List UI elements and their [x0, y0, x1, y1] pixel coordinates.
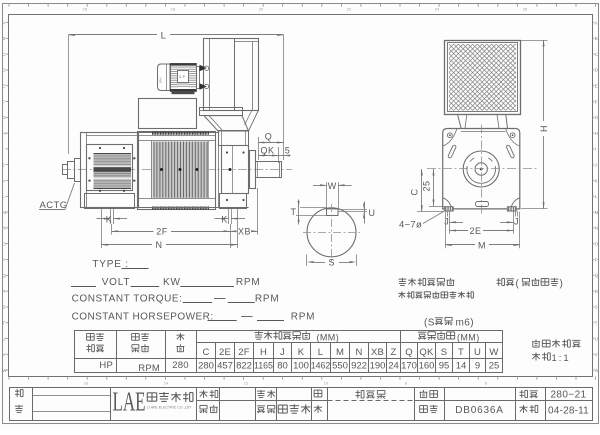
- svg-text:K: K: [298, 347, 305, 358]
- svg-text:18: 18: [171, 7, 176, 12]
- svg-text:2F: 2F: [156, 227, 168, 237]
- svg-text:190: 190: [370, 361, 386, 372]
- svg-text:N: N: [2, 226, 5, 231]
- svg-text:J: J: [280, 347, 285, 358]
- svg-text:J: J: [444, 217, 449, 227]
- svg-text:P: P: [2, 257, 5, 262]
- svg-text:G: G: [595, 115, 599, 120]
- svg-text:S: S: [595, 305, 598, 310]
- svg-text:T: T: [2, 321, 5, 326]
- svg-text:2E: 2E: [219, 347, 231, 358]
- svg-text:HP: HP: [99, 360, 113, 371]
- svg-text:2F: 2F: [238, 347, 250, 358]
- svg-text:(MM): (MM): [457, 332, 480, 342]
- svg-text:I: I: [595, 147, 596, 152]
- svg-text:160: 160: [419, 361, 435, 372]
- svg-text:280: 280: [198, 361, 214, 372]
- svg-text:95: 95: [439, 361, 450, 372]
- svg-text:280: 280: [172, 360, 188, 371]
- svg-text:DB0636A: DB0636A: [455, 405, 503, 416]
- svg-text:QK: QK: [419, 347, 434, 358]
- svg-text:T: T: [595, 321, 598, 326]
- svg-text:H: H: [539, 125, 549, 132]
- svg-text:N: N: [355, 347, 362, 358]
- svg-text:L: L: [2, 194, 5, 199]
- svg-text:26: 26: [523, 7, 528, 12]
- svg-text:LAE: LAE: [113, 387, 146, 417]
- svg-text:24: 24: [388, 361, 399, 372]
- svg-text:m6): m6): [456, 318, 474, 329]
- svg-text:4−7ø: 4−7ø: [399, 220, 422, 231]
- svg-text:LI AVE ELECTRIC CO.,LDT: LI AVE ELECTRIC CO.,LDT: [147, 406, 191, 410]
- svg-text:H: H: [595, 131, 598, 136]
- svg-text:5: 5: [285, 146, 291, 156]
- svg-text:F: F: [595, 99, 598, 104]
- svg-text:Q: Q: [265, 132, 273, 142]
- svg-text:14: 14: [456, 361, 467, 372]
- svg-text:E: E: [2, 84, 5, 89]
- svg-text:H: H: [260, 347, 267, 358]
- svg-text:(S: (S: [424, 318, 435, 329]
- svg-text:J: J: [2, 163, 4, 168]
- svg-text:25: 25: [421, 180, 431, 191]
- svg-text:F: F: [2, 99, 5, 104]
- svg-text:Z: Z: [390, 347, 396, 358]
- svg-text:): ): [560, 279, 564, 290]
- svg-text:S: S: [441, 347, 448, 358]
- svg-text:T: T: [291, 207, 297, 217]
- svg-text:U: U: [369, 208, 376, 218]
- svg-text:RPM: RPM: [291, 312, 316, 323]
- svg-text:H: H: [2, 131, 5, 136]
- svg-text:C: C: [202, 347, 209, 358]
- svg-text:W: W: [595, 368, 600, 373]
- svg-text:N: N: [595, 226, 598, 231]
- svg-text:E: E: [595, 84, 598, 89]
- svg-text:B: B: [2, 36, 5, 41]
- svg-text:20: 20: [259, 7, 264, 12]
- svg-text:P: P: [595, 257, 598, 262]
- svg-text:3PH: 3PH: [159, 78, 163, 84]
- svg-text:24: 24: [435, 7, 440, 12]
- svg-text:U: U: [474, 347, 481, 358]
- svg-text:K: K: [221, 214, 228, 224]
- svg-text:1:1: 1:1: [552, 353, 571, 364]
- svg-text:04-28-11: 04-28-11: [548, 406, 589, 417]
- svg-text:XB: XB: [371, 347, 384, 358]
- svg-text:(MM): (MM): [317, 332, 340, 342]
- svg-text:QK: QK: [260, 146, 274, 156]
- svg-text:O: O: [595, 242, 599, 247]
- svg-text:VOLT: VOLT: [102, 277, 131, 288]
- svg-text:10: 10: [324, 380, 329, 385]
- svg-text:280−21: 280−21: [550, 390, 586, 401]
- svg-text:RPM: RPM: [236, 277, 261, 288]
- svg-text:170: 170: [401, 361, 417, 372]
- svg-text:CONSTANT HORSEPOWER:: CONSTANT HORSEPOWER:: [72, 312, 214, 323]
- svg-text:L: L: [318, 347, 323, 358]
- svg-text:L: L: [595, 194, 598, 199]
- svg-text:80: 80: [277, 361, 288, 372]
- svg-text:2E: 2E: [469, 226, 481, 236]
- svg-text:922: 922: [351, 361, 367, 372]
- svg-text:M: M: [595, 210, 599, 215]
- svg-text:RPM: RPM: [255, 294, 280, 305]
- svg-text:3 P: 3 P: [179, 75, 186, 79]
- svg-text:M: M: [336, 347, 344, 358]
- svg-text:100: 100: [293, 361, 309, 372]
- svg-text:CONSTANT TORQUE:: CONSTANT TORQUE:: [72, 294, 183, 305]
- svg-text:14: 14: [164, 380, 169, 385]
- svg-text:25: 25: [489, 361, 500, 372]
- svg-text:S: S: [2, 305, 5, 310]
- svg-text:L: L: [161, 30, 167, 41]
- svg-text:U: U: [2, 336, 5, 341]
- svg-text:1462: 1462: [311, 361, 331, 371]
- svg-text:T: T: [458, 347, 464, 358]
- svg-text:K: K: [106, 214, 113, 224]
- svg-text:C: C: [409, 189, 419, 196]
- svg-text:J: J: [595, 163, 597, 168]
- svg-text:Q: Q: [595, 273, 599, 278]
- svg-text:822: 822: [236, 361, 252, 372]
- svg-text:16: 16: [84, 380, 89, 385]
- svg-text:22: 22: [347, 7, 352, 12]
- svg-text:J: J: [514, 217, 519, 227]
- svg-text:550: 550: [332, 361, 348, 372]
- svg-text:16: 16: [83, 7, 88, 12]
- svg-text:(: (: [516, 279, 520, 290]
- svg-text:457: 457: [217, 361, 233, 372]
- svg-text:N: N: [156, 240, 163, 250]
- svg-text:Q: Q: [405, 347, 413, 358]
- svg-text:1165: 1165: [254, 361, 273, 371]
- svg-text:I: I: [2, 147, 3, 152]
- svg-text:S: S: [329, 258, 336, 268]
- svg-text:9: 9: [475, 361, 480, 372]
- svg-text:B: B: [595, 36, 598, 41]
- svg-text:12: 12: [244, 380, 249, 385]
- svg-text:KW: KW: [163, 277, 181, 288]
- svg-text:W: W: [328, 181, 337, 191]
- svg-text:XB: XB: [238, 227, 251, 237]
- svg-text:W: W: [489, 347, 498, 358]
- svg-text:U: U: [595, 336, 598, 341]
- svg-text:RPM: RPM: [138, 363, 160, 374]
- svg-text:M: M: [478, 240, 486, 250]
